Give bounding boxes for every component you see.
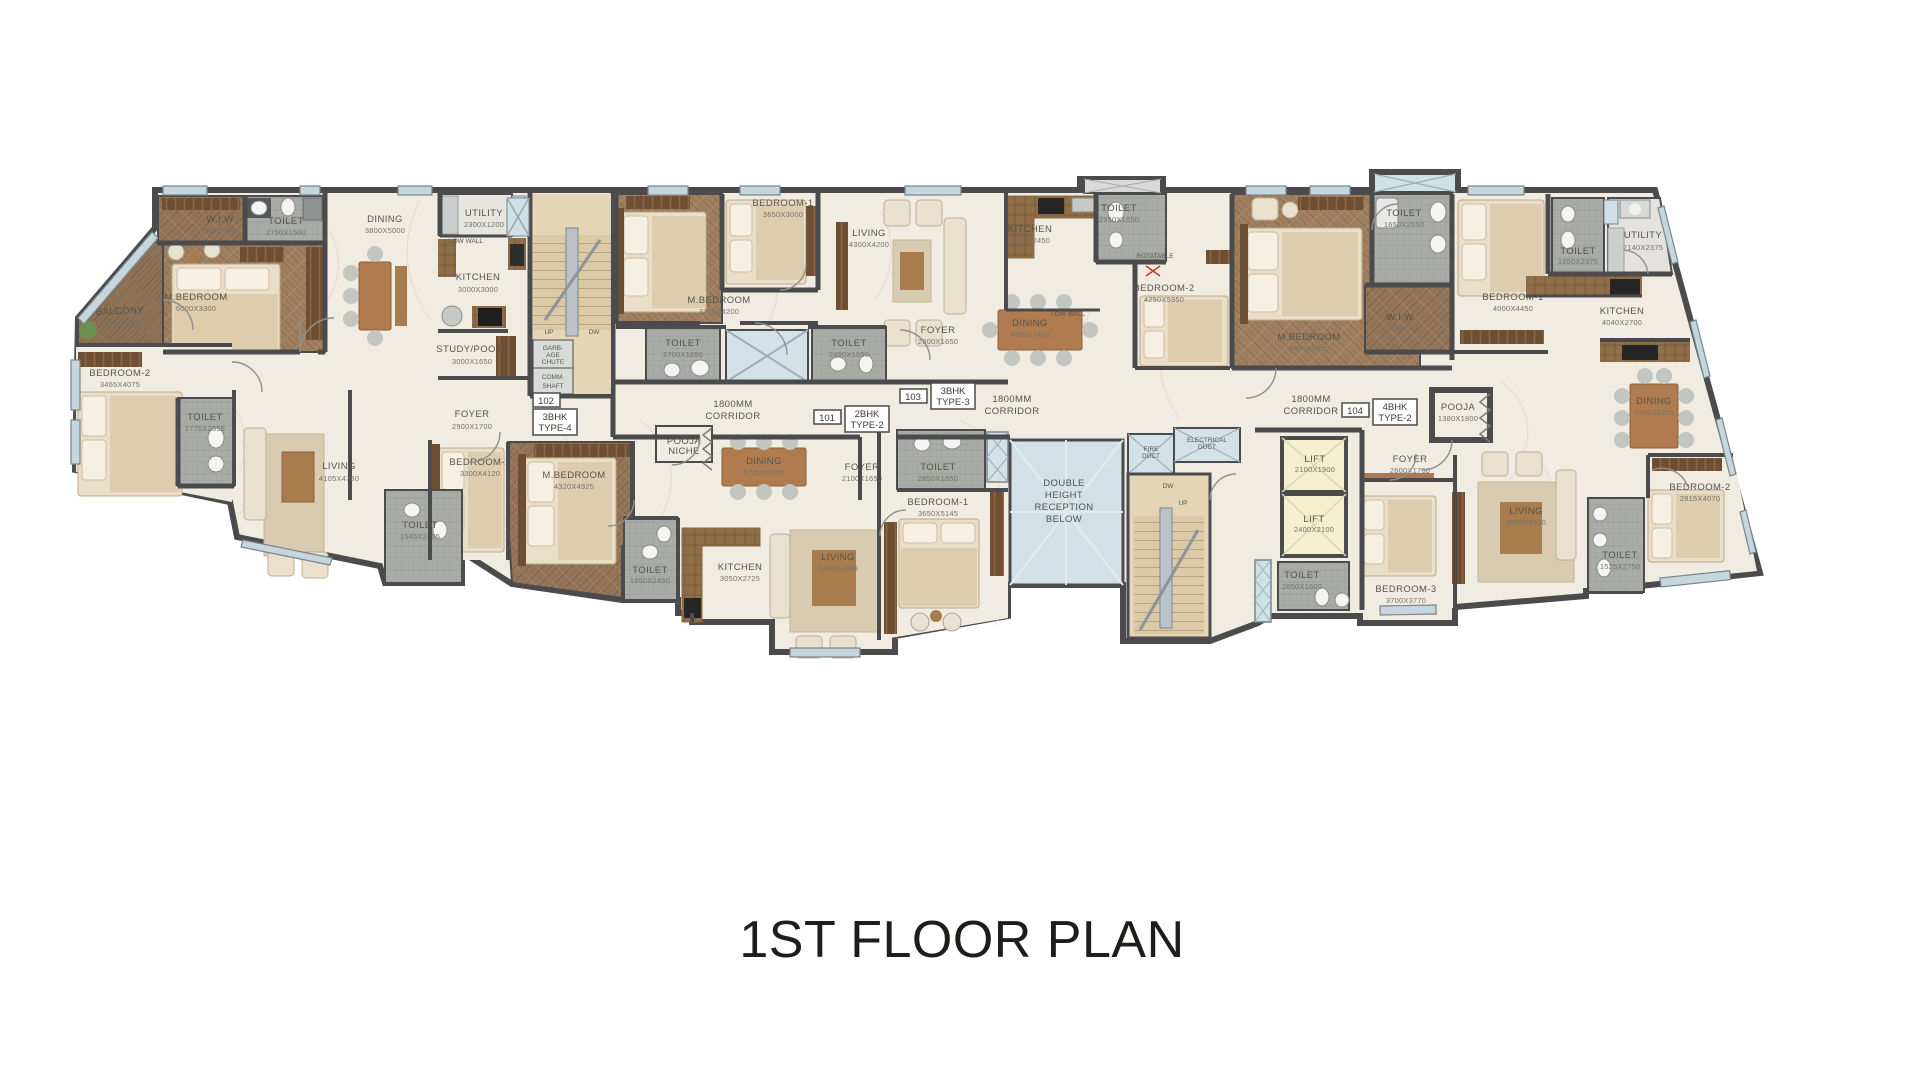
svg-text:TOILET: TOILET bbox=[920, 462, 955, 473]
svg-text:M.BEDROOM: M.BEDROOM bbox=[1277, 332, 1340, 343]
svg-text:2400X2100: 2400X2100 bbox=[1294, 525, 1334, 534]
svg-text:102: 102 bbox=[538, 396, 554, 407]
svg-text:1800MM: 1800MM bbox=[1291, 394, 1330, 405]
svg-text:TOILET: TOILET bbox=[1560, 246, 1595, 257]
svg-text:W.I.W: W.I.W bbox=[206, 214, 233, 225]
svg-text:LIVING: LIVING bbox=[821, 552, 855, 563]
svg-text:2750X1500: 2750X1500 bbox=[266, 228, 306, 237]
svg-text:2450X1650: 2450X1650 bbox=[829, 350, 869, 359]
svg-text:BEDROOM-1: BEDROOM-1 bbox=[449, 457, 510, 468]
svg-text:DUCT: DUCT bbox=[1198, 444, 1216, 451]
svg-text:4860X5950: 4860X5950 bbox=[1289, 344, 1329, 353]
svg-text:CORRIDOR: CORRIDOR bbox=[1284, 406, 1339, 417]
svg-text:DW: DW bbox=[1163, 483, 1175, 490]
svg-text:3800X5000: 3800X5000 bbox=[365, 226, 405, 235]
svg-text:GARB-: GARB- bbox=[543, 345, 564, 352]
svg-text:1ST FLOOR PLAN: 1ST FLOOR PLAN bbox=[739, 911, 1184, 969]
svg-text:RECEPTION: RECEPTION bbox=[1034, 502, 1093, 513]
svg-text:3000X1650: 3000X1650 bbox=[452, 357, 492, 366]
svg-text:3900X3945: 3900X3945 bbox=[818, 564, 858, 573]
svg-text:CORRIDOR: CORRIDOR bbox=[985, 406, 1040, 417]
svg-text:1380X1800: 1380X1800 bbox=[1438, 414, 1478, 423]
svg-text:4BHK: 4BHK bbox=[1383, 402, 1408, 413]
svg-text:NICHE: NICHE bbox=[668, 446, 700, 457]
svg-text:CORRIDOR: CORRIDOR bbox=[706, 411, 761, 422]
svg-text:LIVING: LIVING bbox=[322, 461, 356, 472]
svg-text:101: 101 bbox=[819, 413, 835, 424]
svg-text:3700X4200: 3700X4200 bbox=[699, 307, 739, 316]
svg-text:UP: UP bbox=[1178, 500, 1187, 507]
svg-text:FOYER: FOYER bbox=[1393, 454, 1428, 465]
svg-text:BEDROOM-3: BEDROOM-3 bbox=[1375, 584, 1436, 595]
svg-text:2100X1900: 2100X1900 bbox=[1295, 465, 1335, 474]
svg-text:4000X4450: 4000X4450 bbox=[1493, 304, 1533, 313]
svg-text:4250X5950: 4250X5950 bbox=[1144, 295, 1184, 304]
svg-text:FIRE: FIRE bbox=[1144, 446, 1159, 453]
svg-text:3BHK: 3BHK bbox=[543, 412, 568, 423]
svg-text:TOILET: TOILET bbox=[1284, 570, 1319, 581]
svg-text:4105X4780: 4105X4780 bbox=[319, 474, 359, 483]
svg-text:1525X2750: 1525X2750 bbox=[1600, 562, 1640, 571]
svg-text:TYPE-2: TYPE-2 bbox=[1378, 413, 1411, 424]
svg-text:4040X2700: 4040X2700 bbox=[1602, 318, 1642, 327]
svg-text:1650X2450: 1650X2450 bbox=[630, 576, 670, 585]
svg-text:4300X4200: 4300X4200 bbox=[849, 240, 889, 249]
svg-text:TOILET: TOILET bbox=[402, 520, 437, 531]
svg-text:TOILET: TOILET bbox=[1101, 203, 1136, 214]
svg-text:TOILET: TOILET bbox=[1602, 550, 1637, 561]
svg-text:BEDROOM-2: BEDROOM-2 bbox=[89, 368, 150, 379]
svg-text:4320X4925: 4320X4925 bbox=[554, 482, 594, 491]
svg-text:LIVING: LIVING bbox=[1509, 506, 1543, 517]
svg-text:LOW WALL: LOW WALL bbox=[1051, 311, 1085, 318]
svg-text:UTILITY: UTILITY bbox=[465, 208, 503, 219]
svg-text:3970X2450: 3970X2450 bbox=[1010, 236, 1050, 245]
svg-text:2300X1200: 2300X1200 bbox=[464, 220, 504, 229]
svg-text:1800MM: 1800MM bbox=[713, 399, 752, 410]
svg-text:2350X1650: 2350X1650 bbox=[1099, 215, 1139, 224]
svg-text:KITCHEN: KITCHEN bbox=[1600, 306, 1645, 317]
svg-text:FOYER: FOYER bbox=[455, 409, 490, 420]
svg-text:3650X3000: 3650X3000 bbox=[763, 210, 803, 219]
svg-text:3700X3770: 3700X3770 bbox=[1386, 596, 1426, 605]
svg-text:3000X3000: 3000X3000 bbox=[458, 285, 498, 294]
svg-text:2900X1700: 2900X1700 bbox=[452, 422, 492, 431]
svg-text:BEDROOM-1: BEDROOM-1 bbox=[907, 497, 968, 508]
svg-text:BELOW: BELOW bbox=[1046, 514, 1082, 525]
svg-text:KITCHEN: KITCHEN bbox=[1008, 224, 1053, 235]
svg-text:2850X1650: 2850X1650 bbox=[918, 474, 958, 483]
svg-text:TYPE-3: TYPE-3 bbox=[936, 397, 969, 408]
svg-text:DINING: DINING bbox=[367, 214, 403, 225]
svg-text:TOILET: TOILET bbox=[187, 412, 222, 423]
svg-text:1545X2405: 1545X2405 bbox=[400, 532, 440, 541]
svg-text:STUDY/POOJA: STUDY/POOJA bbox=[436, 344, 508, 355]
svg-text:M.BEDROOM: M.BEDROOM bbox=[687, 295, 750, 306]
svg-text:3650X5145: 3650X5145 bbox=[918, 509, 958, 518]
svg-text:1650X1700: 1650X1700 bbox=[1380, 324, 1420, 333]
svg-text:SHAFT: SHAFT bbox=[542, 383, 563, 390]
svg-text:3BHK: 3BHK bbox=[941, 386, 966, 397]
svg-text:DOUBLE: DOUBLE bbox=[1043, 478, 1084, 489]
svg-text:CHUTE: CHUTE bbox=[542, 359, 565, 366]
svg-text:UTILITY: UTILITY bbox=[1624, 230, 1662, 241]
svg-text:FOYER: FOYER bbox=[921, 325, 956, 336]
svg-text:5.54 SQM: 5.54 SQM bbox=[102, 318, 137, 327]
svg-text:2815X4070: 2815X4070 bbox=[1680, 494, 1720, 503]
svg-text:2BHK: 2BHK bbox=[855, 409, 880, 420]
svg-text:BEDROOM-2: BEDROOM-2 bbox=[1133, 283, 1194, 294]
svg-text:UP: UP bbox=[544, 329, 553, 336]
svg-text:1775X2655: 1775X2655 bbox=[185, 424, 225, 433]
svg-text:TOILET: TOILET bbox=[831, 338, 866, 349]
svg-text:2650X1600: 2650X1600 bbox=[1282, 582, 1322, 591]
svg-text:5780X3200: 5780X3200 bbox=[744, 468, 784, 477]
svg-text:6000X3300: 6000X3300 bbox=[176, 304, 216, 313]
svg-text:LIFT: LIFT bbox=[1304, 454, 1325, 465]
svg-text:3800X4510: 3800X4510 bbox=[1506, 518, 1546, 527]
svg-text:AGE: AGE bbox=[546, 352, 560, 359]
svg-text:TOILET: TOILET bbox=[1386, 208, 1421, 219]
svg-text:1650X2375: 1650X2375 bbox=[1558, 257, 1598, 266]
svg-text:DUCT: DUCT bbox=[1142, 453, 1160, 460]
svg-text:KITCHEN: KITCHEN bbox=[718, 562, 763, 573]
svg-text:TYPE-2: TYPE-2 bbox=[850, 420, 883, 431]
svg-text:TOILET: TOILET bbox=[632, 565, 667, 576]
svg-text:3050X2725: 3050X2725 bbox=[720, 574, 760, 583]
svg-text:LIFT: LIFT bbox=[1303, 514, 1324, 525]
svg-text:TV UNIT: TV UNIT bbox=[1142, 259, 1167, 266]
svg-text:3300X4120: 3300X4120 bbox=[460, 469, 500, 478]
svg-text:LOW WALL: LOW WALL bbox=[449, 238, 483, 245]
svg-text:HEIGHT: HEIGHT bbox=[1045, 490, 1083, 501]
svg-text:103: 103 bbox=[905, 392, 921, 403]
svg-text:2700X1650: 2700X1650 bbox=[663, 350, 703, 359]
svg-text:1800MM: 1800MM bbox=[992, 394, 1031, 405]
svg-text:DINING: DINING bbox=[1012, 318, 1048, 329]
svg-text:KITCHEN: KITCHEN bbox=[456, 272, 501, 283]
svg-text:4900X3225: 4900X3225 bbox=[1634, 408, 1674, 417]
svg-text:LIVING: LIVING bbox=[852, 228, 886, 239]
svg-text:TYPE-4: TYPE-4 bbox=[538, 423, 571, 434]
svg-text:BEDROOM-1: BEDROOM-1 bbox=[752, 198, 813, 209]
svg-text:ELECTRICAL: ELECTRICAL bbox=[1187, 437, 1227, 444]
svg-text:TOILET: TOILET bbox=[268, 216, 303, 227]
svg-text:W.I.W: W.I.W bbox=[1386, 312, 1413, 323]
svg-text:DINING: DINING bbox=[1636, 396, 1672, 407]
svg-text:104: 104 bbox=[1347, 406, 1363, 417]
svg-text:DINING: DINING bbox=[746, 456, 782, 467]
svg-text:1650X2550: 1650X2550 bbox=[1384, 220, 1424, 229]
svg-text:BALCONY: BALCONY bbox=[96, 305, 145, 318]
svg-text:COMM.: COMM. bbox=[542, 374, 565, 381]
svg-text:TOILET: TOILET bbox=[665, 338, 700, 349]
svg-text:M.BEDROOM: M.BEDROOM bbox=[542, 470, 605, 481]
svg-text:1900X1500: 1900X1500 bbox=[200, 226, 240, 235]
svg-text:3465X4075: 3465X4075 bbox=[100, 380, 140, 389]
svg-text:POOJA: POOJA bbox=[1441, 402, 1475, 413]
svg-text:BEDROOM-2: BEDROOM-2 bbox=[1669, 482, 1730, 493]
svg-text:DW: DW bbox=[589, 329, 601, 336]
svg-text:4800X3400: 4800X3400 bbox=[1010, 330, 1050, 339]
